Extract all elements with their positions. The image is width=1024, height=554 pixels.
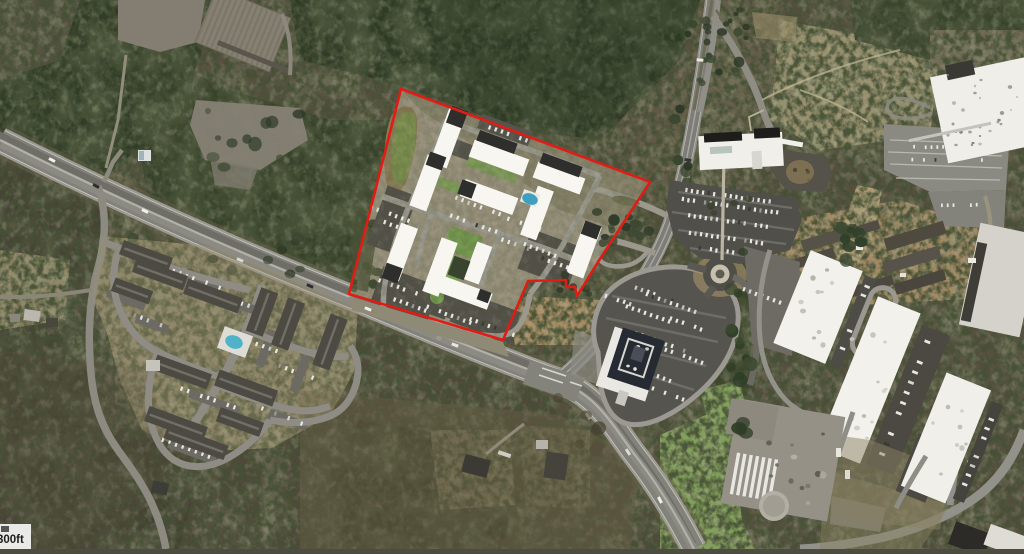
svg-text:300ft: 300ft bbox=[0, 534, 24, 546]
